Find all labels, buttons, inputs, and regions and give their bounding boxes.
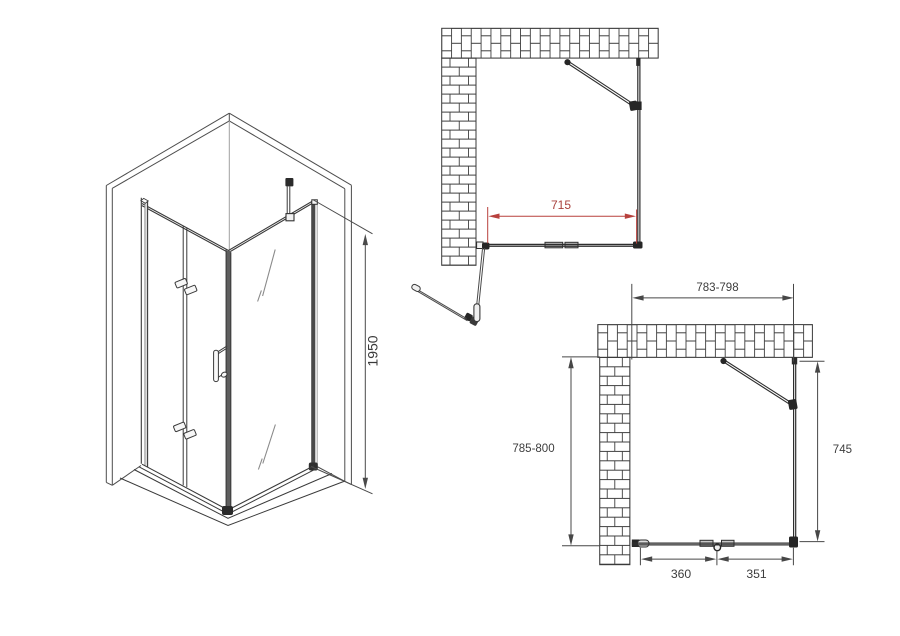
svg-text:360: 360: [671, 567, 692, 581]
svg-text:1950: 1950: [364, 335, 380, 366]
svg-text:783-798: 783-798: [696, 282, 738, 294]
svg-text:715: 715: [551, 198, 571, 212]
svg-text:785-800: 785-800: [512, 443, 554, 455]
svg-text:351: 351: [746, 567, 767, 581]
svg-text:745: 745: [833, 444, 852, 456]
